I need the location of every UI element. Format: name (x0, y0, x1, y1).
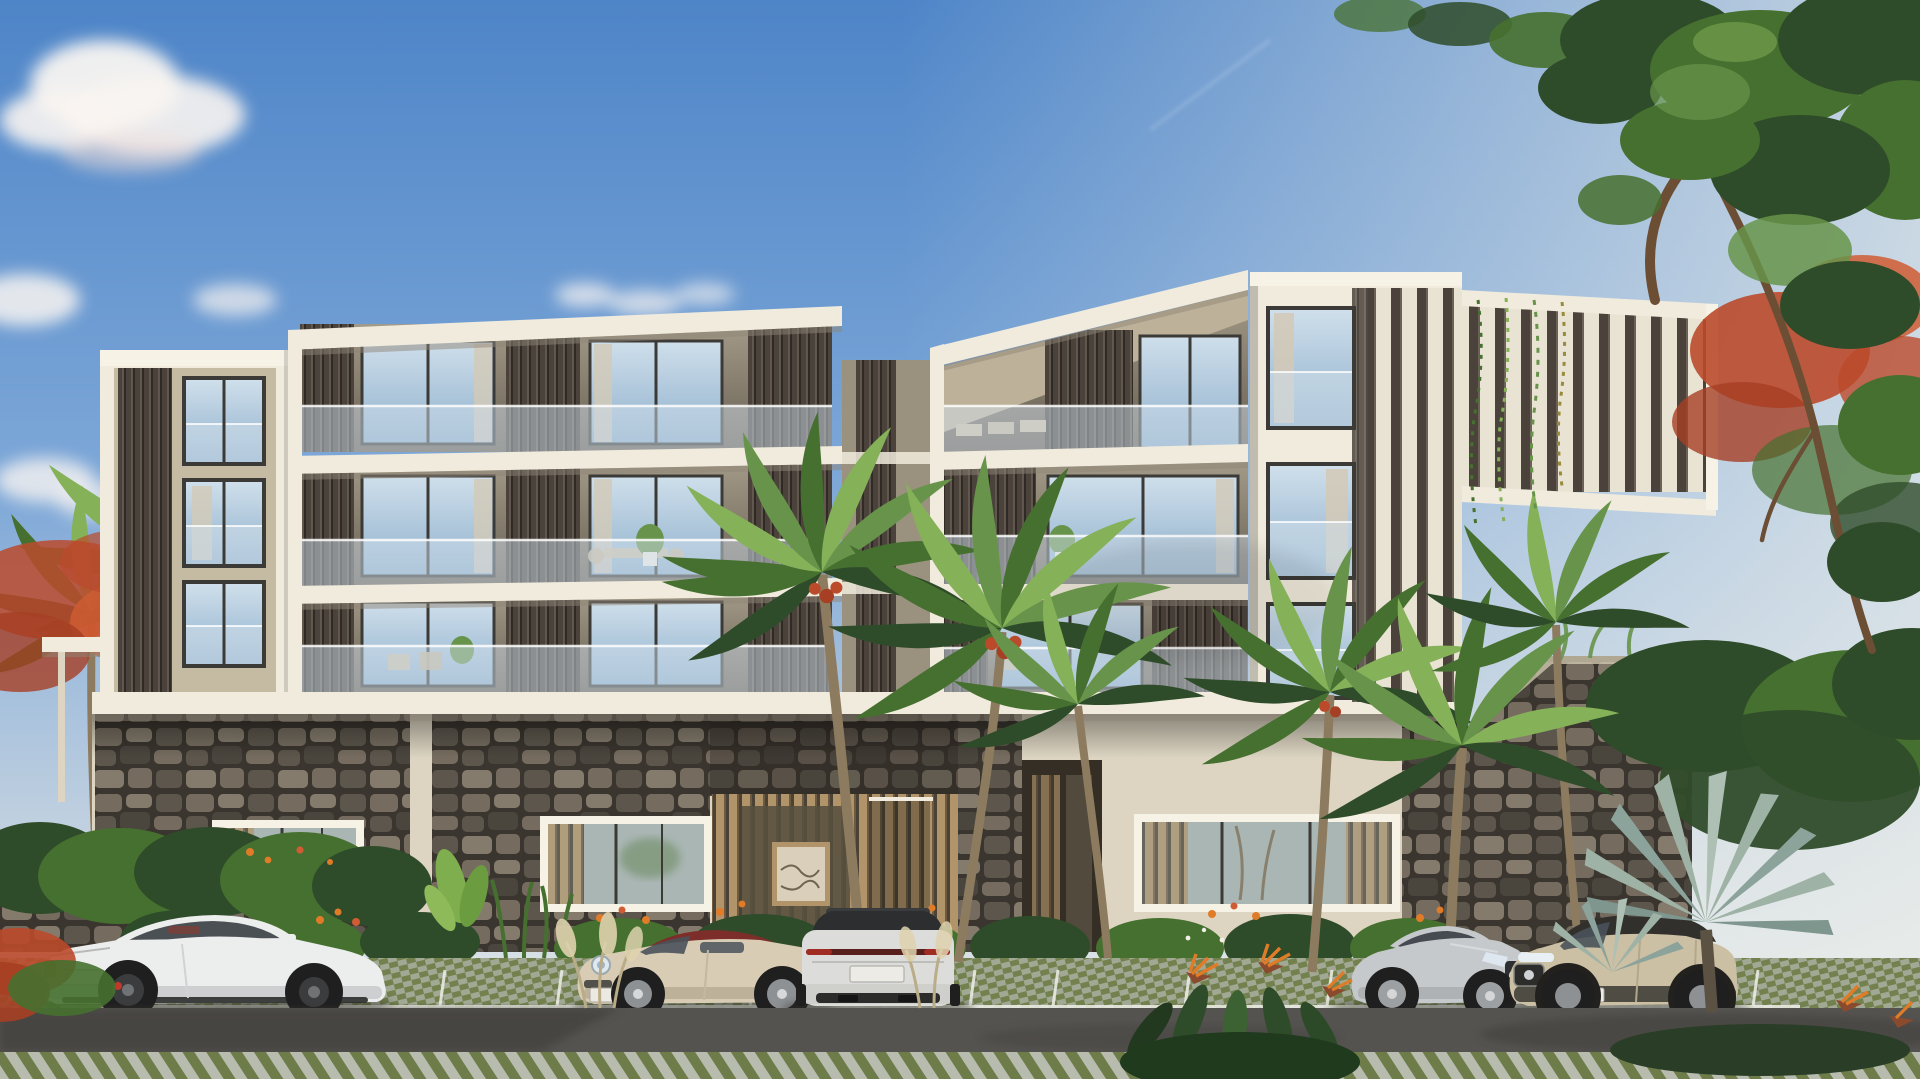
tower-window (182, 376, 266, 466)
exhaust (838, 995, 858, 1002)
headlight (1518, 953, 1554, 962)
tree-shadow (0, 1008, 620, 1052)
ground-floor-window (540, 816, 712, 912)
louver-screen (118, 368, 172, 692)
apartment-render (0, 0, 1920, 1079)
tower-window (182, 478, 266, 568)
glass-balustrade (300, 406, 832, 452)
fin-block-window (1266, 306, 1356, 430)
tower-window (182, 580, 266, 668)
ground-floor-window (1134, 814, 1400, 912)
glass-balustrade (944, 406, 1248, 452)
render-canvas: Photorealistic architectural rendering o… (0, 0, 1920, 1079)
license-plate (850, 966, 904, 982)
fin-wing-extension (1462, 290, 1718, 516)
glass-balustrade (300, 646, 832, 692)
left-tower (100, 350, 292, 692)
exhaust (898, 995, 918, 1002)
